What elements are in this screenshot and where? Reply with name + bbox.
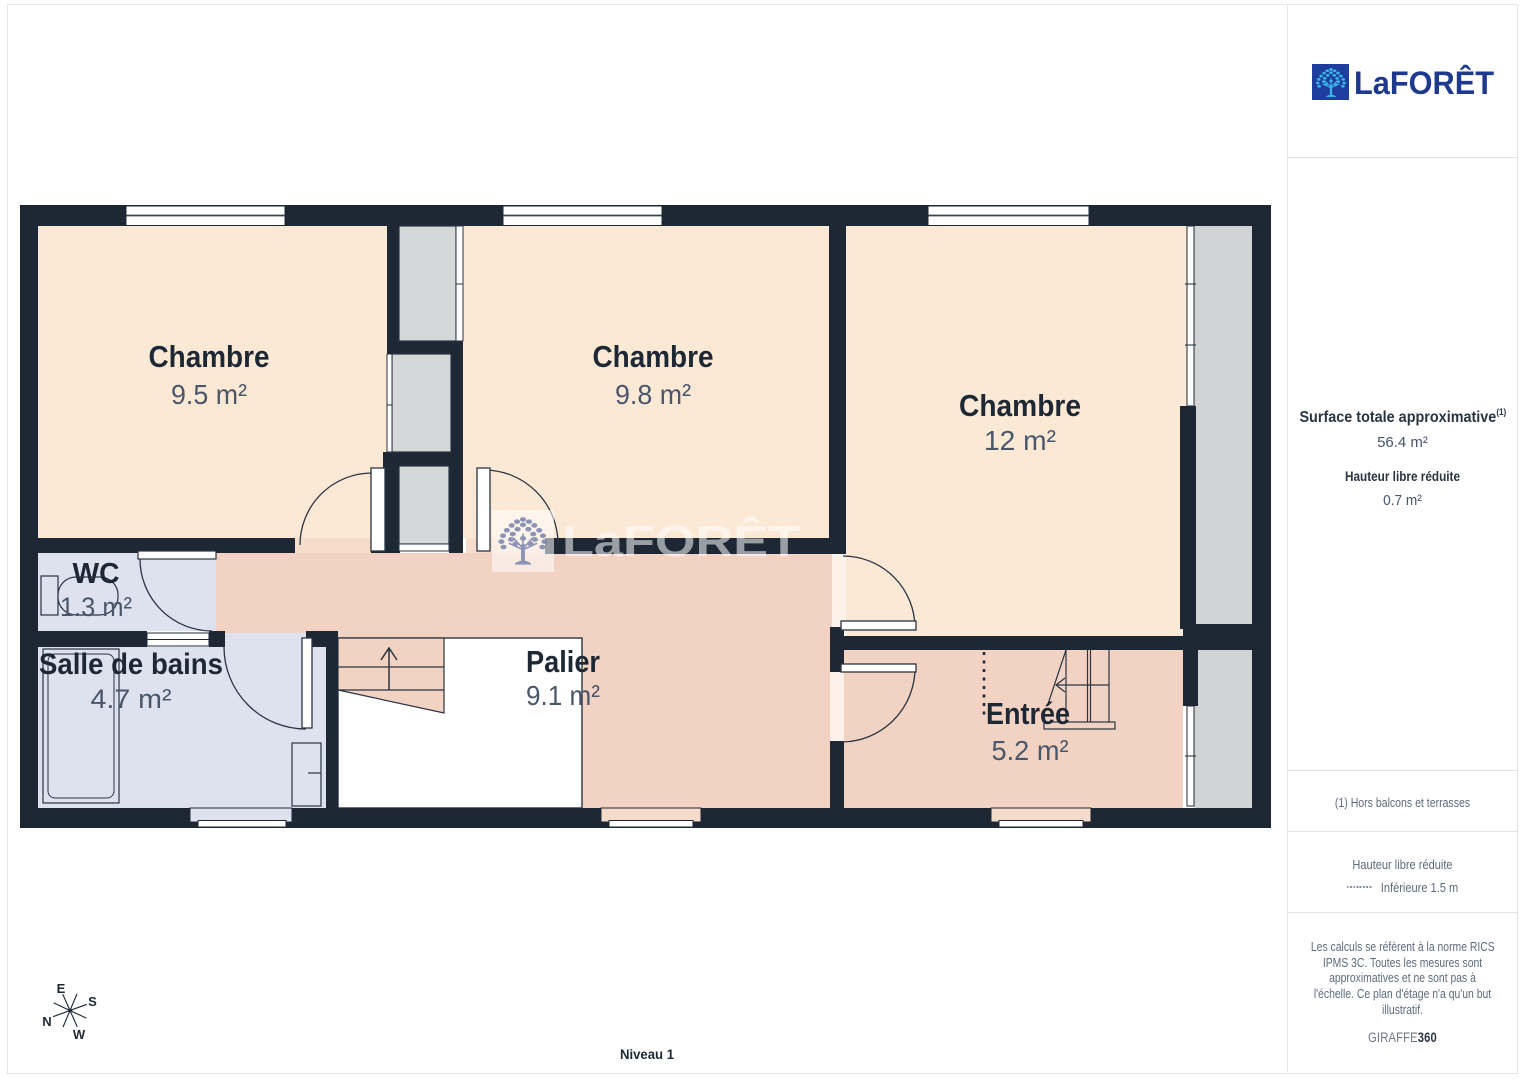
svg-text:Chambre: Chambre [593, 339, 714, 374]
svg-text:Niveau 1: Niveau 1 [620, 1046, 674, 1062]
svg-text:Salle de bains: Salle de bains [39, 648, 223, 681]
svg-text:S: S [88, 994, 97, 1009]
svg-text:W: W [73, 1027, 86, 1042]
svg-text:WC: WC [73, 558, 120, 590]
svg-text:Chambre: Chambre [149, 339, 270, 374]
svg-text:Entrée: Entrée [986, 696, 1070, 731]
svg-text:1.3 m²: 1.3 m² [60, 592, 132, 622]
svg-text:4.7 m²: 4.7 m² [91, 684, 172, 714]
svg-text:LaFORÊT: LaFORÊT [562, 516, 800, 566]
svg-text:9.5 m²: 9.5 m² [171, 379, 247, 410]
svg-text:5.2 m²: 5.2 m² [992, 735, 1069, 766]
svg-text:12 m²: 12 m² [984, 425, 1056, 456]
svg-text:9.8 m²: 9.8 m² [615, 379, 691, 410]
svg-text:E: E [57, 981, 66, 996]
svg-text:Palier: Palier [526, 644, 600, 679]
svg-text:N: N [42, 1014, 51, 1029]
svg-text:9.1 m²: 9.1 m² [526, 680, 600, 711]
svg-text:Chambre: Chambre [959, 388, 1081, 423]
